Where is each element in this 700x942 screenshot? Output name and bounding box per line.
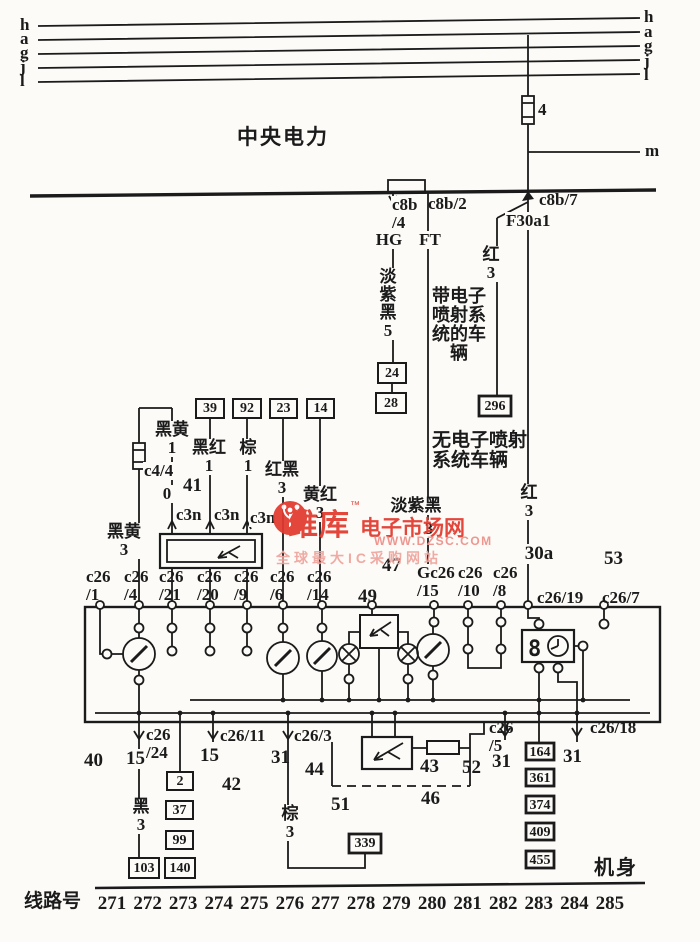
box-140: 140 [165,861,195,877]
callout-47: 47 [382,556,401,576]
resistor-icon [427,741,459,754]
line-number: 283 [522,893,556,915]
wire-black-red-1: 黑红 1 [190,439,228,475]
connector-c44-label: c4/4 [143,462,174,480]
connector-gc26-15: Gc26 /15 [416,564,456,600]
note-with-efi: 带电子喷射系统的车辆 [430,287,488,363]
wire-red-black-3: 红黑 3 [263,461,301,497]
callout-31a: 31 [271,748,290,768]
connector-c26-7: c26/7 [602,589,640,607]
connector-c26-20: c26 /20 [197,568,222,604]
rail-label-l-right: l [644,66,649,84]
line-number: 272 [131,893,165,915]
callout-51: 51 [331,795,350,815]
connector-c26-3: c26/3 [294,727,332,745]
connector-c26-6: c26 /6 [270,568,295,604]
fuse-icon [522,96,534,124]
connector-c26-11: c26/11 [220,727,265,745]
callout-49: 49 [358,587,377,607]
central-power-title: 中央电力 [228,126,338,148]
box-296: 296 [479,399,511,415]
box-28: 28 [376,396,406,412]
rail-label-m: m [645,142,659,160]
connector-c26-10: c26 /10 [458,564,483,600]
wire-red-3-lower: 红 3 [517,484,541,520]
wire-brown-3: 棕 3 [277,805,303,841]
callout-41: 41 [182,476,203,496]
wire-light-purple-black-5: 淡紫 黑 5 [371,268,405,340]
box-2: 2 [167,774,193,790]
power-rails [38,18,640,82]
wiring-diagram-scan: 8 h a g j l h a g j l 4 m 中央电力 c8b / [0,0,700,942]
line-number: 273 [166,893,200,915]
line-number: 279 [380,893,414,915]
connector-c3n-label-2: c3n [213,506,241,524]
box-409: 409 [526,825,554,841]
callout-43: 43 [420,757,439,777]
line-number-title: 线路号 [24,892,81,912]
terminal-30a-label: 30a [518,544,560,564]
callout-44: 44 [305,760,324,780]
wire-light-purple-black-3-num: 3 [418,520,440,538]
clock-digit: 8 [528,637,541,662]
rail-label-l-left: l [20,72,25,90]
box-339: 339 [349,836,381,852]
connector-c26-5: c26 /5 [489,719,514,755]
chassis-label: 机身 [588,858,644,879]
line-number: 277 [308,893,342,915]
connector-c26-4: c26 /4 [124,568,149,604]
callout-53: 53 [604,549,623,569]
callout-42: 42 [222,775,241,795]
box-103: 103 [129,861,159,877]
callout-31c: 31 [563,747,582,767]
box-39: 39 [196,401,224,417]
connector-c26-9: c26 /9 [234,568,259,604]
box-374: 374 [526,798,554,814]
box-23: 23 [270,401,297,417]
wire-red-3-upper: 红 3 [479,246,503,282]
connector-c8b7-label: c8b/7 [539,191,578,209]
connector-c26-24: c26 /24 [146,726,171,762]
line-number: 271 [95,893,129,915]
box-14: 14 [307,401,334,417]
line-number: 280 [415,893,449,915]
line-number-rule [95,883,645,888]
box-92: 92 [233,401,261,417]
box-99: 99 [166,833,193,849]
panel-interior-wires [95,609,650,722]
box-361: 361 [526,771,554,787]
callout-31b: 31 [492,752,511,772]
line-number: 285 [593,893,627,915]
callout-15a: 15 [125,749,146,769]
line-number: 278 [344,893,378,915]
wire-hg-label: HG [374,231,404,249]
wire-ft-label: FT [415,231,445,249]
note-without-efi: 无电子喷射系统车辆 [432,431,532,471]
line-number: 281 [451,893,485,915]
connector-c8b2-label: c8b/2 [428,195,467,213]
connector-c8b4-label: c8b /4 [391,196,427,232]
box-164: 164 [526,745,554,761]
wire-black-yellow-3: 黑黄 3 [104,523,144,559]
connector-c3n-label-1: c3n [175,506,203,524]
switch-41-icon [160,534,262,568]
fuse-4-label: 4 [538,101,547,119]
box-24: 24 [378,366,406,382]
schematic-lines: 8 [0,0,700,942]
clock-module: 8 [522,630,574,662]
clock-icon [548,636,568,656]
line-number: 276 [273,893,307,915]
connector-f30a1-label: F30a1 [505,212,551,230]
connector-c3n-label-3: c3n [249,509,277,527]
line-number: 275 [237,893,271,915]
connector-c26-8: c26 /8 [493,564,518,600]
wire-black-3: 黑 3 [128,798,154,834]
connector-c26-1: c26 /1 [86,568,111,604]
wire-brown-1: 棕 1 [236,439,260,475]
connector-c26-18: c26/18 [590,719,636,737]
wire-black-yellow-1: 黑黄 1 [152,421,192,457]
wire-light-purple-black-3: 淡紫黑 [384,497,448,515]
line-number: 284 [557,893,591,915]
line-number: 274 [202,893,236,915]
callout-46: 46 [421,789,440,809]
regulator-switch-icon [360,615,398,648]
callout-15b: 15 [200,746,219,766]
callout-40: 40 [84,751,103,771]
connector-c26-19: c26/19 [537,589,583,607]
line-number: 282 [486,893,520,915]
wire-yellow-red-3: 黄红 3 [301,486,339,522]
connector-c26-21: c26 /21 [159,568,184,604]
line-numbers-row: 271 272 273 274 275 276 277 278 279 280 … [95,893,627,915]
box-37: 37 [166,803,193,819]
connector-c26-14: c26 /14 [307,568,332,604]
callout-52: 52 [462,758,481,778]
terminal-0-label: 0 [158,485,176,503]
box-455: 455 [526,853,554,869]
